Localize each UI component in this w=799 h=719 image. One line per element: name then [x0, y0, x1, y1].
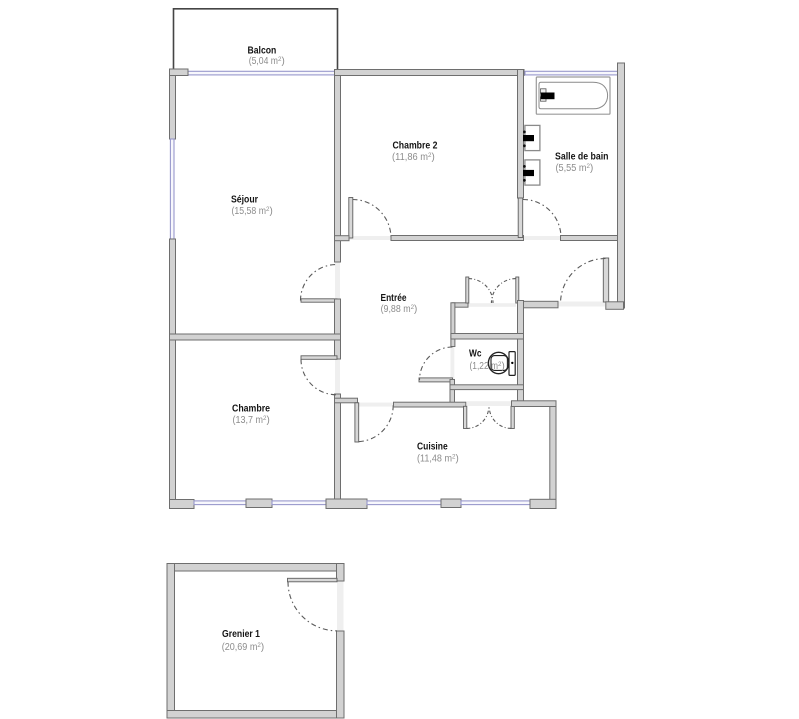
svg-text:Salle de bain: Salle de bain: [555, 152, 609, 163]
svg-text:Entrée: Entrée: [381, 293, 407, 304]
svg-text:Chambre: Chambre: [232, 404, 270, 415]
svg-text:Chambre 2: Chambre 2: [393, 141, 438, 152]
svg-text:Séjour: Séjour: [231, 195, 258, 206]
svg-text:Grenier 1: Grenier 1: [222, 629, 260, 640]
svg-text:Balcon: Balcon: [248, 46, 277, 57]
svg-text:Cuisine: Cuisine: [417, 442, 448, 453]
svg-text:Wc: Wc: [469, 348, 482, 359]
